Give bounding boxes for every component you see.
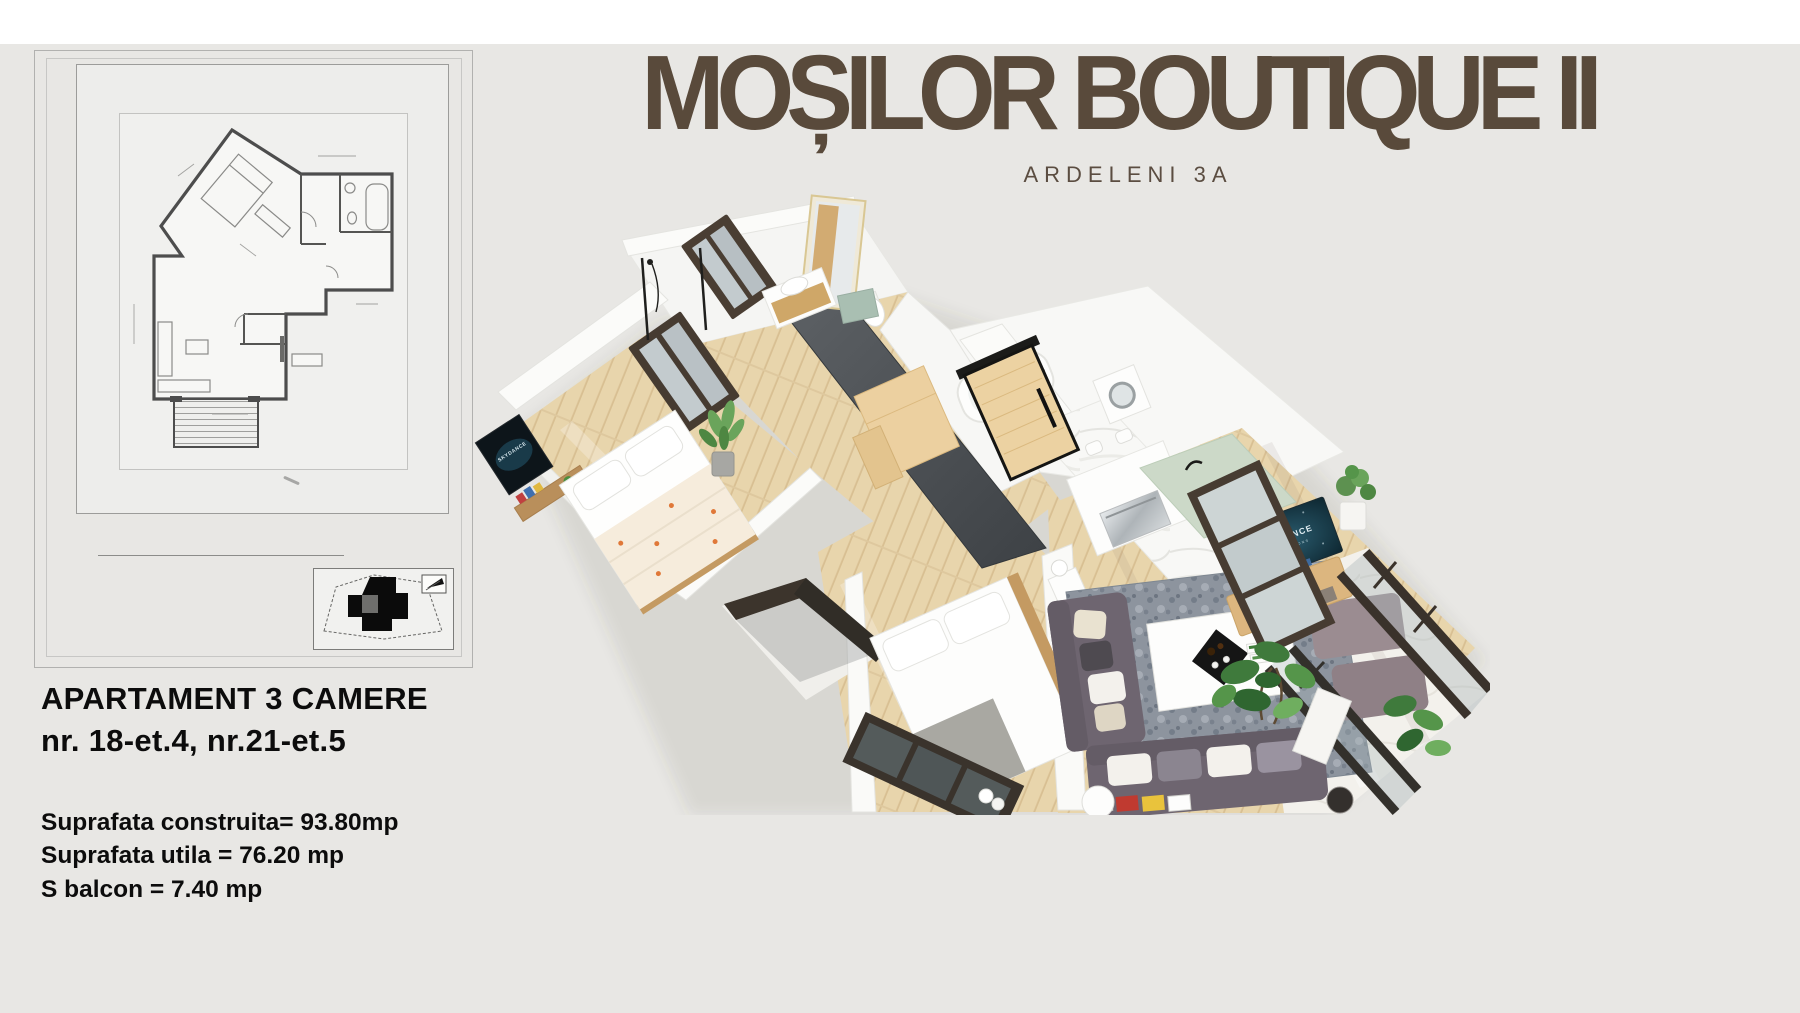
floorplan-2d-drawing bbox=[120, 114, 407, 469]
render-3d: SKYDANCE bbox=[430, 135, 1490, 815]
apartment-heading: APARTAMENT 3 CAMERE bbox=[41, 681, 428, 718]
signature-line bbox=[98, 555, 344, 556]
side-table-round bbox=[1082, 786, 1114, 815]
site-unit-highlight bbox=[362, 595, 378, 613]
area-built: Suprafata construita= 93.80mp bbox=[41, 806, 428, 839]
project-title: MOȘILOR BOUTIQUE II bbox=[560, 40, 1676, 146]
apartment-areas: Suprafata construita= 93.80mp Suprafata … bbox=[41, 806, 428, 906]
blueprint-panel bbox=[34, 50, 473, 668]
plan-tv-mark bbox=[280, 336, 284, 362]
plan-outer-walls bbox=[154, 130, 392, 399]
plant-small-terrace bbox=[1336, 465, 1376, 530]
apartment-details: APARTAMENT 3 CAMERE nr. 18-et.4, nr.21-e… bbox=[41, 681, 428, 906]
plan-wall-pier bbox=[170, 396, 182, 402]
plan-wall-pier bbox=[248, 396, 260, 402]
poster-canvas: APARTAMENT 3 CAMERE nr. 18-et.4, nr.21-e… bbox=[0, 0, 1800, 1013]
speaker-cylinder bbox=[1327, 787, 1353, 813]
area-balcony: S balcon = 7.40 mp bbox=[41, 873, 428, 906]
apartment-units: nr. 18-et.4, nr.21-et.5 bbox=[41, 723, 428, 760]
floorplan-2d bbox=[119, 113, 408, 470]
render-3d-scene: SKYDANCE bbox=[430, 135, 1490, 815]
plan-balcony bbox=[174, 399, 258, 447]
area-usable: Suprafata utila = 76.20 mp bbox=[41, 839, 428, 872]
plan-bathtub bbox=[366, 184, 388, 230]
